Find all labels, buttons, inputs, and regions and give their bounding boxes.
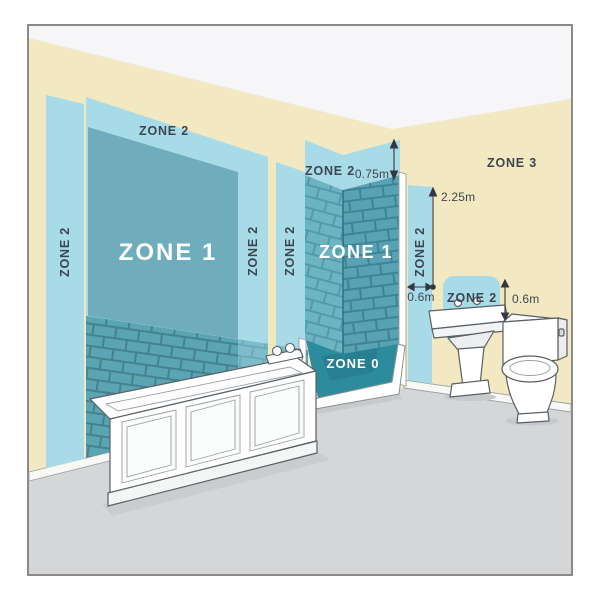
toilet-base <box>517 412 549 423</box>
label-shower-zone2-side: ZONE 2 <box>413 227 427 277</box>
bathroom-zones-diagram: ZONE 2 ZONE 2 ZONE 2 ZONE 2 ZONE 1 ZONE … <box>0 0 600 600</box>
label-06m-shower: 0.6m <box>407 290 434 304</box>
label-bath-zone2-outer: ZONE 2 <box>283 226 297 276</box>
label-shower-zone1: ZONE 1 <box>319 242 393 262</box>
label-bath-zone2-top: ZONE 2 <box>139 124 189 138</box>
label-bath-zone2-inner: ZONE 2 <box>246 226 260 276</box>
cistern-side <box>558 318 567 360</box>
tap-handle-cold <box>286 344 295 353</box>
label-shower-zone2-top: ZONE 2 <box>305 164 355 178</box>
shower-right-wall-tiles <box>343 175 400 354</box>
tap-handle-hot <box>273 347 282 356</box>
zone2-band-left <box>46 95 84 468</box>
label-06m-basin: 0.6m <box>512 292 539 306</box>
label-225m: 2.25m <box>441 190 475 204</box>
flush-button <box>559 329 564 336</box>
label-075m: 0.75m <box>355 167 389 181</box>
label-bath-zone2-left: ZONE 2 <box>58 227 72 277</box>
label-bath-zone1: ZONE 1 <box>119 239 218 266</box>
label-zone0: ZONE 0 <box>327 356 380 371</box>
shower-left-wall-tiles <box>305 175 343 354</box>
label-zone3: ZONE 3 <box>487 156 537 170</box>
label-basin-zone2: ZONE 2 <box>447 291 497 305</box>
